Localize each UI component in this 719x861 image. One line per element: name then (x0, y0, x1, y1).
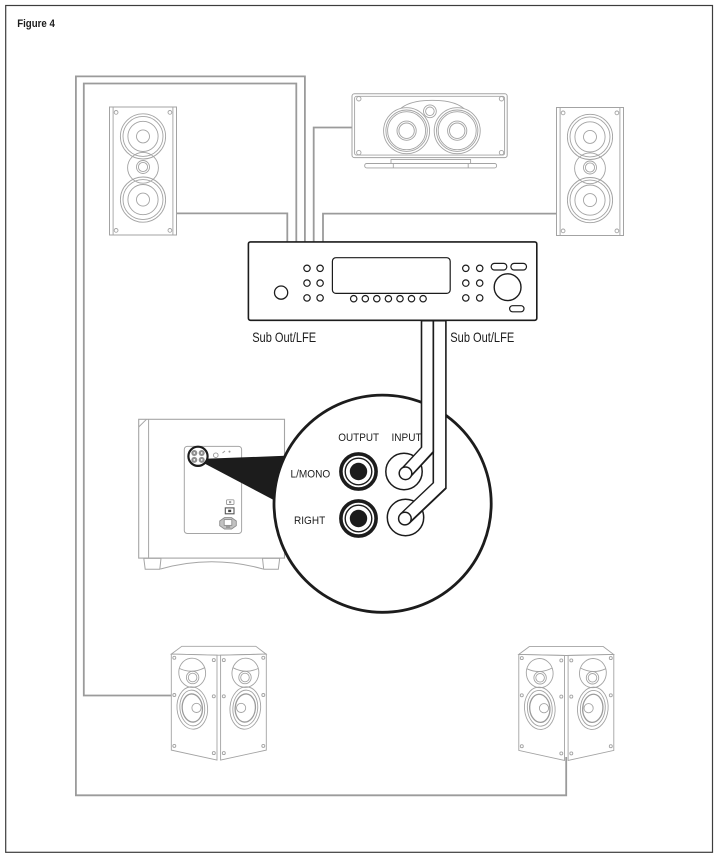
svg-text:OUTPUT: OUTPUT (338, 432, 379, 444)
svg-text:Sub Out/LFE: Sub Out/LFE (450, 329, 514, 345)
svg-text:Figure 4: Figure 4 (17, 18, 55, 30)
svg-text:L/MONO: L/MONO (291, 469, 331, 481)
svg-text:RIGHT: RIGHT (294, 515, 325, 527)
svg-text:Sub Out/LFE: Sub Out/LFE (252, 329, 316, 345)
svg-text:INPUT: INPUT (392, 432, 422, 444)
